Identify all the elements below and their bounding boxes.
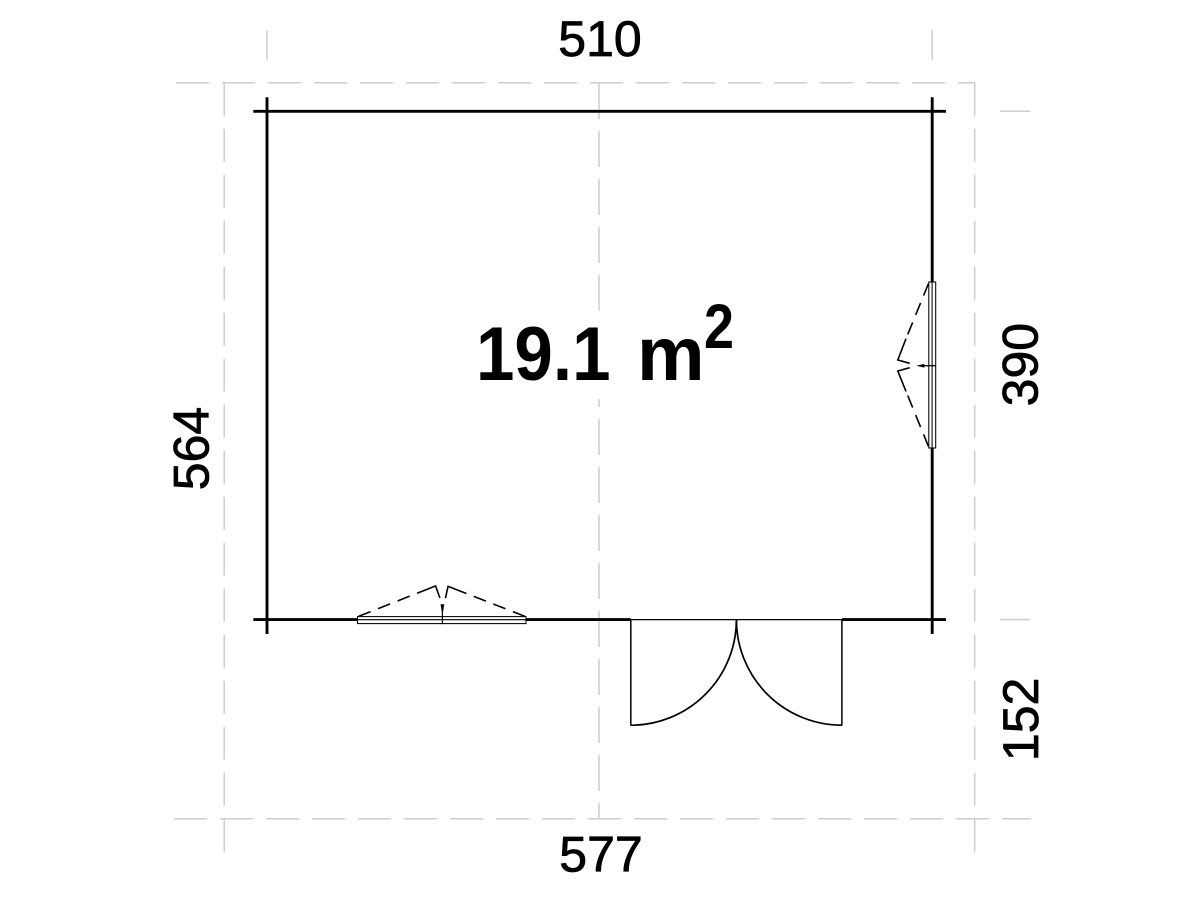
svg-text:390: 390 xyxy=(993,323,1049,406)
svg-text:510: 510 xyxy=(558,11,641,67)
svg-text:577: 577 xyxy=(559,827,642,883)
svg-text:152: 152 xyxy=(993,678,1049,761)
svg-text:564: 564 xyxy=(163,407,219,490)
